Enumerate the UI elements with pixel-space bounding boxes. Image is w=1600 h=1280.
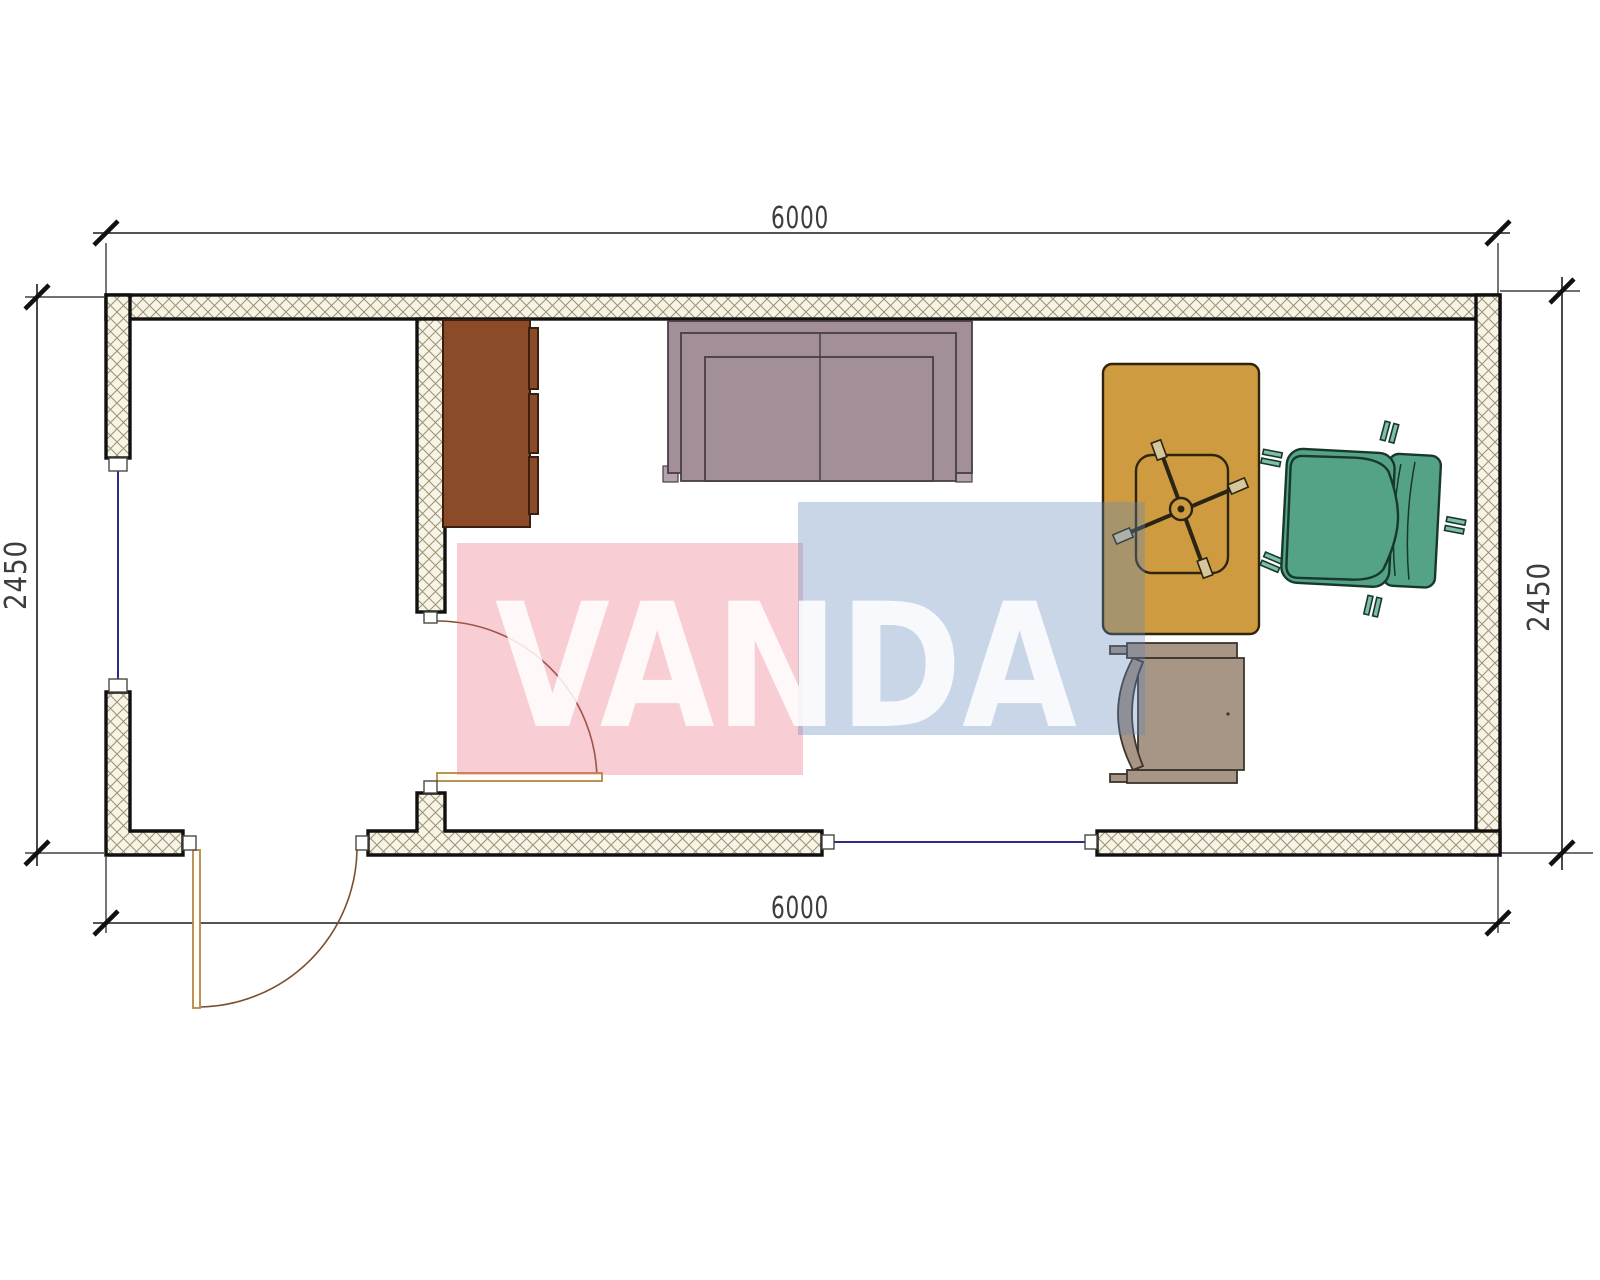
dim-left-label: 2450 — [0, 540, 34, 610]
dim-right-label: 2450 — [1522, 562, 1557, 632]
sofa — [663, 321, 972, 482]
floor-plan-canvas: 6000 6000 2450 2450 — [0, 0, 1600, 1280]
guest-chair-bottom-arm — [1127, 770, 1237, 783]
wall-top — [106, 295, 1500, 319]
watermark-text: VANDA — [495, 566, 1077, 767]
wall-left-upper — [106, 295, 130, 458]
entry-door-leaf — [193, 850, 200, 1008]
wall-right — [1476, 295, 1500, 855]
wall-bottom-right-segment — [1097, 831, 1500, 855]
floor-plan-drawing: 6000 6000 2450 2450 — [0, 0, 1600, 1280]
cabinet — [443, 320, 538, 527]
dim-bottom-label: 6000 — [771, 891, 829, 926]
wall-interior-partition — [417, 319, 445, 612]
armchair-cushion — [1285, 454, 1401, 583]
sofa-seat — [705, 357, 933, 481]
dim-top-label: 6000 — [771, 201, 829, 236]
